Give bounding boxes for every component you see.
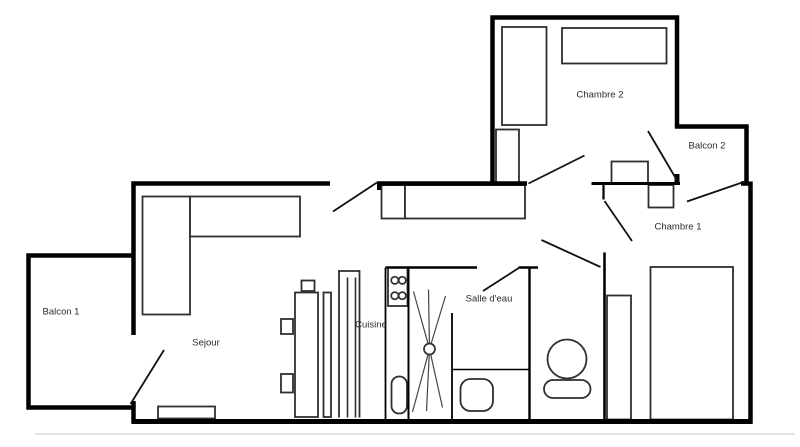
floorplan-svg: Balcon 1SejourCuisineSalle d'eauChambre … [0, 0, 800, 447]
room-label-sejour: Sejour [192, 338, 219, 349]
wall-layer [27, 16, 753, 424]
burner-4 [399, 292, 406, 299]
kitchen-column-layer [339, 270, 360, 418]
shower-drain [424, 344, 435, 355]
burner-1 [391, 277, 398, 284]
table-chambre2 [612, 162, 649, 184]
room-label-chambre-2: Chambre 2 [577, 90, 624, 101]
room-label-balcon-2: Balcon 2 [689, 141, 726, 152]
room-label-chambre-1: Chambre 1 [655, 222, 702, 233]
door-chambre1 [605, 201, 633, 241]
toilet-bowl [548, 340, 587, 379]
shower-ray-0 [414, 292, 430, 350]
doormat [158, 407, 215, 419]
wardrobe-chambre1 [607, 296, 631, 420]
kitchen-unit-1 [281, 319, 293, 334]
door-entrance [333, 183, 377, 212]
shower-ray-1 [429, 290, 430, 350]
door-chambre2-balcon2 [648, 131, 677, 180]
door-salle-deau [483, 268, 520, 292]
shower-ray-5 [430, 349, 443, 408]
bed-chambre2 [502, 27, 547, 125]
room-label-salle-deau: Salle d'eau [466, 294, 513, 305]
bed-chambre1 [651, 267, 734, 420]
desk-chambre2 [562, 28, 667, 64]
wardrobe-chambre2 [496, 130, 519, 183]
stove [388, 268, 408, 307]
shower-layer [413, 290, 446, 413]
sideboard-long [405, 185, 525, 219]
fridge-top [302, 281, 315, 292]
door-balcon1 [131, 350, 165, 404]
kitchen-shelf [324, 293, 332, 418]
door-chambre1-balcon2 [687, 182, 745, 202]
kitchen-sink [392, 377, 408, 414]
sofa-corner [143, 197, 191, 315]
room-label-balcon-1: Balcon 1 [43, 307, 80, 318]
burner-2 [399, 277, 406, 284]
fridge [295, 293, 318, 418]
burner-3 [391, 292, 398, 299]
shower-ray-2 [430, 296, 446, 349]
door-wc [542, 240, 601, 267]
floorplan: Balcon 1SejourCuisineSalle d'eauChambre … [0, 0, 800, 447]
room-label-cuisine: Cuisine [355, 320, 387, 331]
door-chambre2 [529, 156, 585, 184]
furniture-layer [143, 27, 734, 420]
sofa-long [190, 197, 300, 237]
toilet-tank [544, 380, 591, 398]
sideboard-small [382, 185, 406, 219]
nightstand-chambre1 [649, 185, 674, 208]
washbasin [461, 379, 494, 411]
kitchen-unit-2 [281, 374, 293, 393]
